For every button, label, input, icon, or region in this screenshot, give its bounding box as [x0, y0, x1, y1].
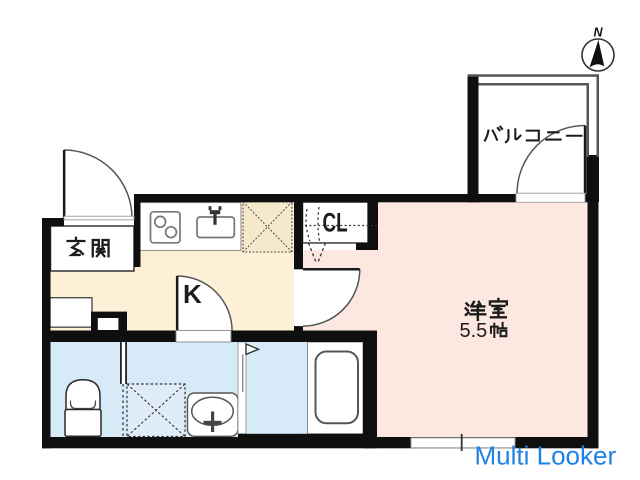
svg-text:K: K — [183, 279, 202, 309]
svg-text:CL: CL — [323, 207, 348, 237]
svg-text:5.5: 5.5 — [460, 320, 488, 342]
svg-text:N: N — [594, 26, 604, 40]
svg-text:Multi Looker: Multi Looker — [475, 440, 617, 470]
